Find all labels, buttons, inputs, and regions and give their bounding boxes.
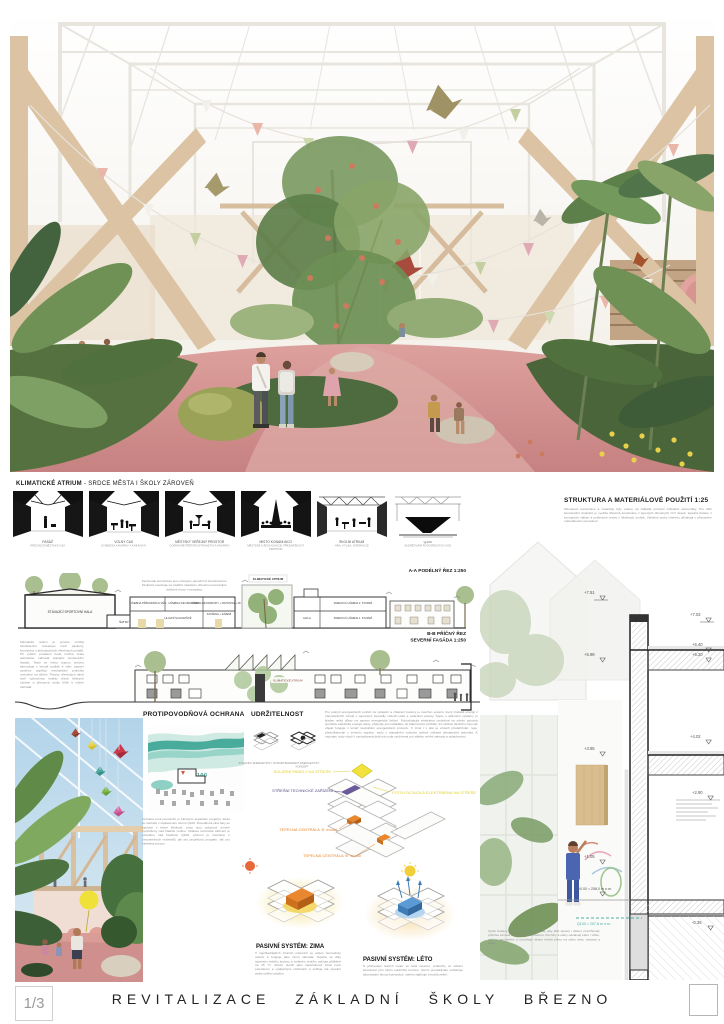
strip-heading-rest: - SRDCE MĚSTA I ŠKOLY ZÁROVEŇ <box>82 481 194 487</box>
flood-map: Q100 <box>148 727 244 811</box>
sustainability-paragraph: Pro pokrytí energetických potřeb na vytá… <box>325 711 478 739</box>
footer-logo-box <box>689 984 718 1016</box>
section-aa-drawing: STÁVAJÍCÍ SPORTOVNÍ HALA ŠATNY UČEBNA PŘ… <box>18 573 478 633</box>
thumbnail-verejny-prostor-drawing <box>165 491 235 539</box>
thumbnail-sublabel: SYMBIÓZA KAVÁRNY A KNIHOVNY <box>89 544 159 547</box>
thumbnail-skolni-atrium: ŠKOLNÍ ATRIUMHRA, VÝUKA, INTERAKCE <box>317 491 387 559</box>
pv-label: FOTOVOLTAICKÁ ELEKTRÁRNA NA STŘEŠE <box>392 790 476 795</box>
passive-winter-diagram <box>240 858 350 946</box>
solar-label: SOLÁRNÍ PANELY NA STŘEŠE <box>274 769 332 774</box>
thumbnail-volny-cas: VOLNÝ ČASSYMBIÓZA KAVÁRNY A KNIHOVNY <box>89 491 159 559</box>
rock <box>435 416 495 444</box>
summer-sun-icon <box>401 862 419 880</box>
thumbnail-sublabel: PRŮCHOZÍ MĚSTSKÁ OSA <box>13 544 83 547</box>
room-label-library: UČEBNA INFORMATIKY + KNIHOVNA + 3D TISK <box>191 602 247 605</box>
competition-board: KLIMATICKÉ ATRIUM - SRDCE MĚSTA I ŠKOLY … <box>0 0 724 1024</box>
sustainability-axon-existing <box>249 722 283 762</box>
flood-paragraph: Ochrana proti povodním je klíčovým aspek… <box>142 818 230 846</box>
summer-paragraph: S příchodem letních veder se atria otevř… <box>363 965 463 977</box>
section-bb-title-line2: SEVERNÍ FASÁDA 1:250 <box>410 638 466 643</box>
interior-render-image <box>15 718 143 982</box>
flood-level-label: Q100 = 257,8 m n.m. <box>577 922 611 926</box>
section-bb-drawing: KLIMATICKÉ ATRIUM <box>15 650 480 712</box>
heat-a-label: TEPELNÁ CENTRÁLA 'A' modul <box>279 827 337 832</box>
level-620: +6.20 <box>692 652 703 657</box>
roof-tech-label: STŘEŠNÍ TECHNICKÉ ZAŘÍZENÍ <box>272 788 334 793</box>
sustainability-axon-proposed <box>286 722 320 762</box>
strip-heading: KLIMATICKÉ ATRIUM - SRDCE MĚSTA I ŠKOLY … <box>16 481 194 487</box>
thumbnail-sublabel: MĚSTSKÉ A ŠKOLNÍ AKCE, PŘEDNÁŠKOVÝ PROST… <box>241 544 311 551</box>
section-bb-title-line1: B-B PŘÍČNÝ ŘEZ <box>427 632 466 637</box>
detail-caption: Výraz budovy je obnoven a navržen tak, a… <box>488 930 600 946</box>
level-000: ±0.00 = 258,0 m n.m. <box>578 887 612 891</box>
room-label-science: UČEBNA PŘÍRODNÍCH VĚD <box>130 600 167 605</box>
plants-right <box>101 854 143 948</box>
footer-title: REVITALIZACE ZÁKLADNÍ ŠKOLY BŘEZNO <box>112 991 612 1007</box>
sustainability-paragraph-box: Pro pokrytí energetických potřeb na vytá… <box>325 711 478 761</box>
thumbnail-pasaz: PASÁŽPRŮCHOZÍ MĚSTSKÁ OSA <box>13 491 83 559</box>
room-label-stairs: HLAVNÍ SCHODIŠTĚ <box>165 615 192 620</box>
sustainability-title: UDRŽITELNOST <box>251 711 304 718</box>
strip-heading-bold: KLIMATICKÉ ATRIUM <box>16 481 82 487</box>
detail-caption-box: Výraz budovy je obnoven a navržen tak, a… <box>488 930 600 964</box>
winter-sun-icon <box>242 858 258 874</box>
room-label-hall: STÁVAJÍCÍ SPORTOVNÍ HALA <box>48 610 94 614</box>
thumbnail-q100: Q100ZADRŽOVÁNÍ POVODŇOVÝCH VOD <box>393 491 463 559</box>
level-395: +3.95 <box>584 746 595 751</box>
thumbnail-q100-drawing <box>393 491 463 539</box>
hero-rendering-image <box>10 10 714 472</box>
room-label-cafe: KAVÁRNA + ZÁZEMÍ <box>207 612 232 616</box>
footer-title-wrap: REVITALIZACE ZÁKLADNÍ ŠKOLY BŘEZNO <box>0 991 724 1009</box>
hero-atrium-scene <box>10 10 714 472</box>
bb-atrium-label: KLIMATICKÉ ATRIUM <box>273 678 303 683</box>
solar-panel-icon <box>352 764 372 778</box>
flood-title: PROTIPOVODŇOVÁ OCHRANA <box>143 711 245 718</box>
level-702: +7.02 <box>690 612 701 617</box>
summer-paragraph-box: S příchodem letních veder se atria otevř… <box>363 965 463 987</box>
thumbnail-volny-cas-drawing <box>89 491 159 539</box>
winter-title: PASIVNÍ SYSTÉM: ZIMA <box>256 944 324 950</box>
yellow-balloon <box>80 891 99 910</box>
room-label-lockers: ŠATNY <box>119 619 129 624</box>
level-751: +7.51 <box>584 590 595 595</box>
thumbnail-sublabel: DOPRAVNĚ PĚŠÍ PROSTRANSTVÍ A KAVÁRNY <box>165 544 235 547</box>
thumbnail-sublabel: HRA, VÝUKA, INTERAKCE <box>317 544 387 547</box>
section-bb-title: B-B PŘÍČNÝ ŘEZ SEVERNÍ FASÁDA 1:250 <box>370 632 466 644</box>
passive-summer-diagram <box>352 862 464 954</box>
winter-paragraph: V nejchladnějších zimních měsících se at… <box>255 952 341 976</box>
systems-exploded-axon: SOLÁRNÍ PANELY NA STŘEŠE STŘEŠNÍ TECHNIC… <box>253 762 481 860</box>
thumbnail-akce: MÍSTO KONÁNÍ AKCÍMĚSTSKÉ A ŠKOLNÍ AKCE, … <box>241 491 311 559</box>
level-105: +1.05 <box>584 854 595 859</box>
structure-detail-drawing: +7.51 +7.02 +6.40 +6.20 +5.98 +4.02 +3.9… <box>480 530 724 980</box>
thumbnail-akce-drawing <box>241 491 311 539</box>
thumbnail-sublabel: ZADRŽOVÁNÍ POVODŇOVÝCH VOD <box>393 544 463 547</box>
level-290: +2.90 <box>692 790 703 795</box>
room-label-hala: HALA <box>303 616 311 620</box>
level-598: +5.98 <box>584 652 595 657</box>
structure-title: STRUKTURA A MATERIÁLOVÉ POUŽITÍ 1:25 <box>564 497 714 504</box>
level-402: +4.02 <box>690 734 701 739</box>
wood-panel <box>576 765 608 825</box>
summer-title: PASIVNÍ SYSTÉM: LÉTO <box>363 957 432 963</box>
thumbnail-pasaz-drawing <box>13 491 83 539</box>
thumbnail-skolni-atrium-drawing <box>317 491 387 539</box>
room-label-atrium: KLIMATICKÉ ATRIUM <box>253 576 284 581</box>
thumbnail-verejny-prostor: MĚSTSKÝ VEŘEJNÝ PROSTORDOPRAVNĚ PĚŠÍ PRO… <box>165 491 235 559</box>
flood-paragraph-box: Ochrana proti povodním je klíčovým aspek… <box>142 818 230 850</box>
winter-paragraph-box: V nejchladnějších zimních měsících se at… <box>255 952 341 982</box>
level-640: +6.40 <box>692 642 703 647</box>
level-minus-035: -0.35 <box>692 920 702 925</box>
concept-thumbnails: PASÁŽPRŮCHOZÍ MĚSTSKÁ OSA VOLNÝ ČASSYMBI… <box>13 491 469 559</box>
structure-paragraph: Obvodové konstrukce a materiály byly vol… <box>564 508 712 524</box>
structure-paragraph-box: Obvodové konstrukce a materiály byly vol… <box>564 508 712 532</box>
